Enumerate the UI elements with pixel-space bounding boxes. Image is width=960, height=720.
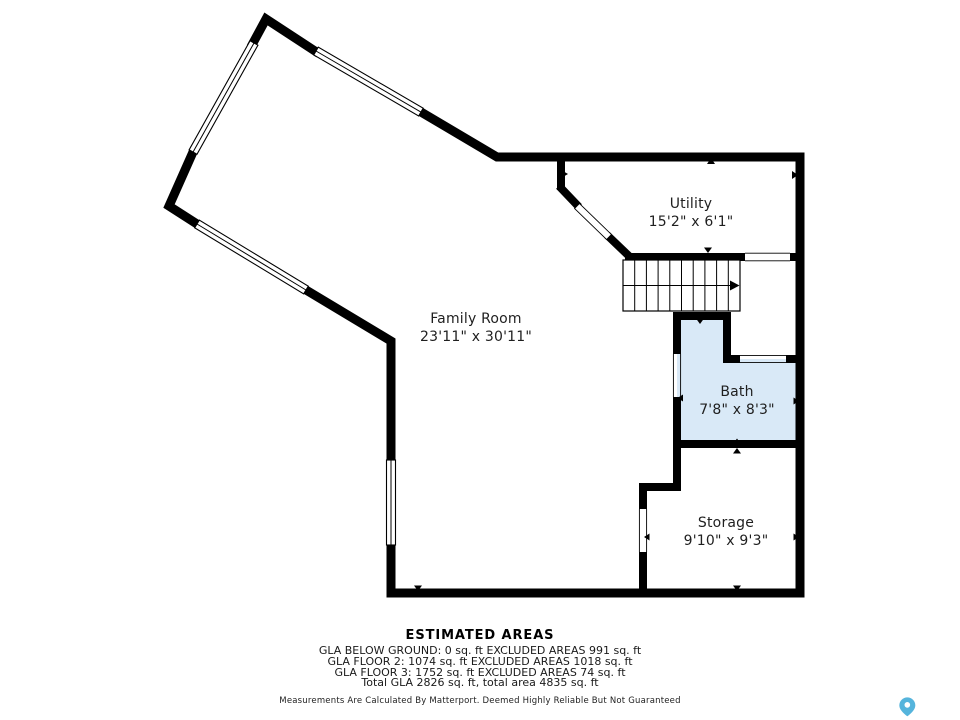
room-label-bath: Bath 7'8" x 8'3" [637, 383, 837, 419]
room-name: Storage [626, 514, 826, 532]
floor-plan: Family Room 23'11" x 30'11" Utility 15'2… [0, 0, 960, 720]
floor-plan-drawing [0, 0, 960, 720]
estimated-areas-title: ESTIMATED AREAS [0, 628, 960, 643]
room-label-family-room: Family Room 23'11" x 30'11" [356, 310, 596, 346]
window-upper-left [189, 41, 258, 154]
stairs [623, 260, 740, 311]
room-dimensions: 7'8" x 8'3" [637, 401, 837, 419]
room-dimensions: 9'10" x 9'3" [626, 532, 826, 550]
room-label-utility: Utility 15'2" x 6'1" [591, 195, 791, 231]
gla-line: Total GLA 2826 sq. ft, total area 4835 s… [0, 678, 960, 689]
estimated-areas-block: ESTIMATED AREAS GLA BELOW GROUND: 0 sq. … [0, 628, 960, 706]
wall-left-corner [169, 152, 197, 224]
window-left-vertical [387, 460, 396, 545]
wall-utility-diag-upper [559, 186, 579, 207]
room-name: Family Room [356, 310, 596, 328]
estimated-areas-lines: GLA BELOW GROUND: 0 sq. ft EXCLUDED AREA… [0, 646, 960, 689]
room-dimensions: 15'2" x 6'1" [591, 213, 791, 231]
measurement-disclaimer: Measurements Are Calculated By Matterpor… [0, 696, 960, 706]
window-upper-right [314, 47, 423, 116]
room-label-storage: Storage 9'10" x 9'3" [626, 514, 826, 550]
room-dimensions: 23'11" x 30'11" [356, 328, 596, 346]
wall-peak [253, 19, 315, 51]
room-name: Utility [591, 195, 791, 213]
room-name: Bath [637, 383, 837, 401]
bath-room-fill [677, 316, 800, 444]
window-lower-left [195, 220, 309, 294]
